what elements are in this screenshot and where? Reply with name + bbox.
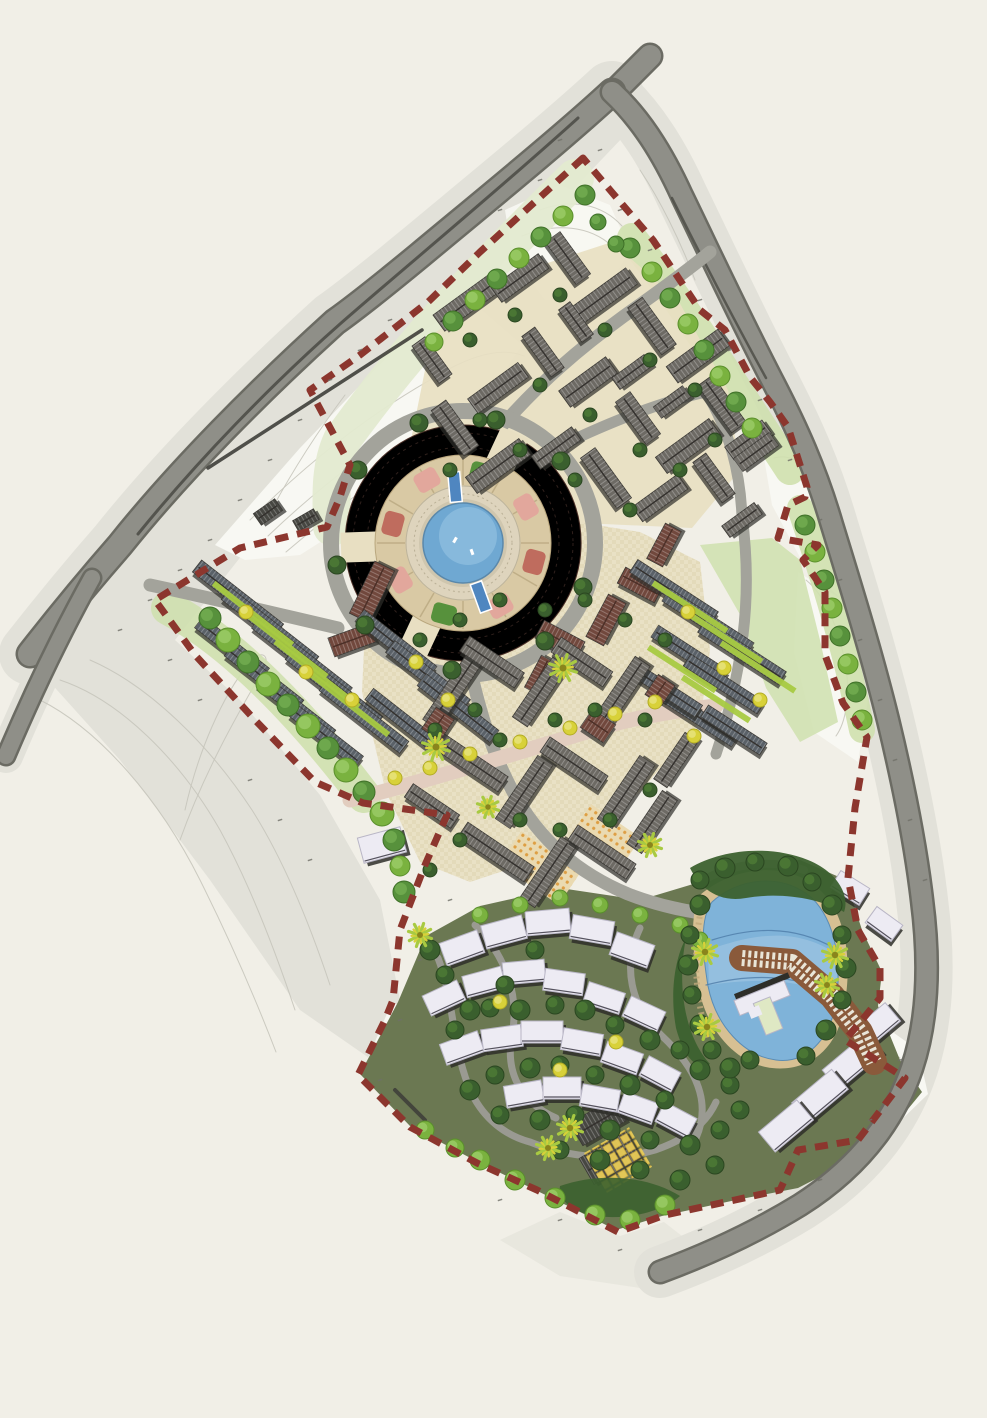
tree-icon xyxy=(720,1058,740,1078)
tree-icon xyxy=(356,616,374,634)
tree-icon xyxy=(641,1131,659,1149)
tree-icon xyxy=(753,693,767,707)
tree-icon xyxy=(680,1135,700,1155)
tree-icon xyxy=(717,661,731,675)
tree-icon xyxy=(691,871,709,889)
tree-icon xyxy=(670,1170,690,1190)
tree-icon xyxy=(473,413,487,427)
villa-building xyxy=(543,1077,584,1103)
tree-icon xyxy=(277,694,299,716)
tree-icon xyxy=(631,1161,649,1179)
tree-icon xyxy=(531,227,551,247)
tree-icon xyxy=(608,236,624,252)
tree-icon xyxy=(465,290,485,310)
tree-icon xyxy=(509,248,529,268)
tree-icon xyxy=(694,340,714,360)
tree-icon xyxy=(345,693,359,707)
tree-icon xyxy=(608,707,622,721)
tree-icon xyxy=(536,632,554,650)
tree-icon xyxy=(726,392,746,412)
tree-icon xyxy=(575,185,595,205)
tree-icon xyxy=(681,605,695,619)
tree-icon xyxy=(512,897,528,913)
tree-icon xyxy=(590,1150,610,1170)
tree-icon xyxy=(486,1066,504,1084)
tree-icon xyxy=(678,314,698,334)
tree-icon xyxy=(658,633,672,647)
tree-icon xyxy=(299,665,313,679)
tree-icon xyxy=(463,333,477,347)
tree-icon xyxy=(711,1121,729,1139)
tree-icon xyxy=(688,383,702,397)
tree-icon xyxy=(383,829,405,851)
tree-icon xyxy=(237,651,259,673)
tree-icon xyxy=(609,1035,623,1049)
tree-icon xyxy=(553,206,573,226)
villa-building xyxy=(525,908,574,940)
tree-icon xyxy=(846,682,866,702)
tree-icon xyxy=(216,628,240,652)
tree-icon xyxy=(410,414,428,432)
tree-icon xyxy=(296,714,320,738)
tree-icon xyxy=(643,353,657,367)
tree-icon xyxy=(460,1080,480,1100)
tree-icon xyxy=(552,452,570,470)
tree-icon xyxy=(538,603,552,617)
tree-icon xyxy=(656,1091,674,1109)
tree-icon xyxy=(690,895,710,915)
tree-icon xyxy=(491,1106,509,1124)
tree-icon xyxy=(453,613,467,627)
tree-icon xyxy=(390,856,410,876)
tree-icon xyxy=(833,991,851,1009)
tree-icon xyxy=(632,907,648,923)
tree-icon xyxy=(586,1066,604,1084)
tree-icon xyxy=(687,729,701,743)
tree-icon xyxy=(317,737,339,759)
tree-icon xyxy=(388,771,402,785)
tree-icon xyxy=(513,443,527,457)
tree-icon xyxy=(638,713,652,727)
tree-icon xyxy=(513,813,527,827)
tree-icon xyxy=(618,613,632,627)
tree-icon xyxy=(746,853,764,871)
tree-icon xyxy=(588,703,602,717)
tree-icon xyxy=(575,1000,595,1020)
tree-icon xyxy=(592,897,608,913)
tree-icon xyxy=(683,986,701,1004)
tree-icon xyxy=(731,1101,749,1119)
tree-icon xyxy=(822,895,842,915)
tree-icon xyxy=(468,703,482,717)
tree-icon xyxy=(715,858,735,878)
tree-icon xyxy=(496,976,514,994)
tree-icon xyxy=(487,269,507,289)
tree-icon xyxy=(460,1000,480,1020)
tree-icon xyxy=(413,633,427,647)
tree-icon xyxy=(803,873,821,891)
tree-icon xyxy=(660,288,680,308)
tree-icon xyxy=(239,605,253,619)
tree-icon xyxy=(690,1060,710,1080)
tree-icon xyxy=(493,733,507,747)
tree-icon xyxy=(710,366,730,386)
tree-icon xyxy=(553,1063,567,1077)
tree-icon xyxy=(640,1030,660,1050)
tree-icon xyxy=(816,1020,836,1040)
tree-icon xyxy=(643,783,657,797)
tree-icon xyxy=(721,1076,739,1094)
tree-icon xyxy=(583,408,597,422)
tree-icon xyxy=(423,761,437,775)
tree-icon xyxy=(795,515,815,535)
tree-icon xyxy=(642,262,662,282)
tree-icon xyxy=(526,941,544,959)
site-plan-rendering xyxy=(0,0,987,1418)
tree-icon xyxy=(441,693,455,707)
tree-icon xyxy=(600,1120,620,1140)
tree-icon xyxy=(603,813,617,827)
tree-icon xyxy=(443,661,461,679)
tree-icon xyxy=(256,672,280,696)
tree-icon xyxy=(568,473,582,487)
tree-icon xyxy=(443,311,463,331)
tree-icon xyxy=(673,463,687,477)
master-plan-canvas xyxy=(0,0,987,1418)
tree-icon xyxy=(472,907,488,923)
tree-icon xyxy=(443,463,457,477)
villa-building xyxy=(521,1021,566,1047)
tree-icon xyxy=(334,758,358,782)
tree-icon xyxy=(425,333,443,351)
tree-icon xyxy=(623,503,637,517)
tree-icon xyxy=(606,1016,624,1034)
tree-icon xyxy=(563,721,577,735)
tree-icon xyxy=(520,1058,540,1078)
tree-icon xyxy=(553,823,567,837)
tree-icon xyxy=(552,890,568,906)
tree-icon xyxy=(620,1075,640,1095)
tree-icon xyxy=(553,288,567,302)
tree-icon xyxy=(703,1041,721,1059)
tree-icon xyxy=(436,966,454,984)
tree-icon xyxy=(598,323,612,337)
tree-icon xyxy=(199,607,221,629)
tree-icon xyxy=(510,1000,530,1020)
tree-icon xyxy=(446,1021,464,1039)
tree-icon xyxy=(453,833,467,847)
tree-icon xyxy=(328,556,346,574)
tree-icon xyxy=(487,411,505,429)
tree-icon xyxy=(513,735,527,749)
tree-icon xyxy=(830,626,850,646)
tree-icon xyxy=(409,655,423,669)
tree-icon xyxy=(508,308,522,322)
tree-icon xyxy=(590,214,606,230)
tree-icon xyxy=(633,443,647,457)
tree-icon xyxy=(578,593,592,607)
tree-icon xyxy=(546,996,564,1014)
tree-icon xyxy=(742,418,762,438)
tree-icon xyxy=(493,995,507,1009)
tree-icon xyxy=(463,747,477,761)
tree-icon xyxy=(741,1051,759,1069)
tree-icon xyxy=(530,1110,550,1130)
tree-icon xyxy=(708,433,722,447)
tree-icon xyxy=(648,695,662,709)
tree-icon xyxy=(493,593,507,607)
tree-icon xyxy=(706,1156,724,1174)
tree-icon xyxy=(833,926,851,944)
tree-icon xyxy=(681,926,699,944)
tree-icon xyxy=(533,378,547,392)
tree-icon xyxy=(838,654,858,674)
tree-icon xyxy=(548,713,562,727)
tree-icon xyxy=(671,1041,689,1059)
tree-icon xyxy=(778,856,798,876)
tree-icon xyxy=(797,1047,815,1065)
